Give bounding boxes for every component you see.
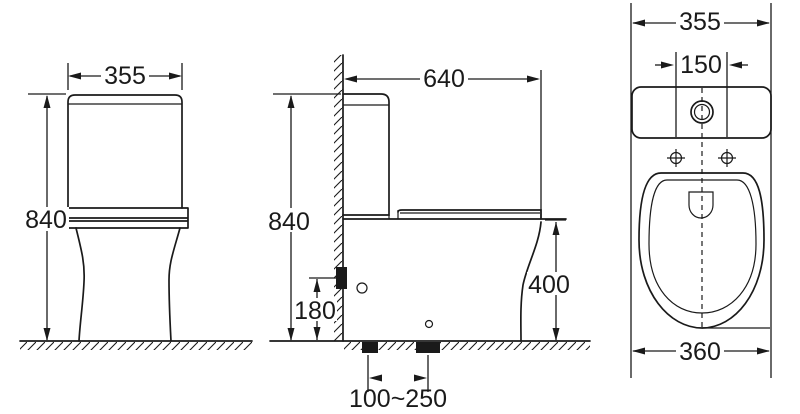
top-width-dimension: 355 [632, 8, 770, 36]
side-rim-height-dimension: 400 [527, 220, 571, 341]
toilet-dimension-drawing: 355 840 [0, 0, 800, 414]
top-view: 355 150 360 [631, 3, 771, 378]
front-width-label: 355 [104, 62, 146, 90]
side-bolt-hole-large [357, 283, 367, 293]
side-outlet-distance-dimension: 100~250 [349, 355, 447, 413]
drawing-canvas: 355 840 [0, 0, 800, 414]
front-view: 355 840 [20, 62, 252, 350]
front-body-right-curve [169, 228, 180, 341]
side-outlet-block-far [416, 342, 440, 353]
side-depth-dimension: 640 [344, 65, 541, 218]
top-bowl-width-dimension: 360 [632, 338, 770, 366]
top-button-offset-label: 150 [680, 51, 722, 79]
front-height-label: 840 [25, 206, 67, 234]
top-seat-bolt-right [718, 149, 736, 167]
side-outlet-block-near [362, 342, 378, 353]
side-view: 640 840 180 400 [267, 55, 590, 413]
top-seat-bolt-left [667, 149, 685, 167]
side-floor-hatch [344, 342, 590, 350]
front-seat-band [64, 208, 188, 228]
side-bolt-hole-small [426, 321, 433, 328]
side-outlet-distance-label: 100~250 [349, 385, 447, 413]
top-tank-outline [632, 87, 771, 138]
side-height-label: 840 [268, 208, 310, 236]
top-flush-water-spot [689, 192, 713, 218]
front-body-left-curve [76, 228, 84, 341]
side-seat-slab [398, 210, 541, 219]
side-rim-height-label: 400 [528, 271, 570, 299]
top-width-label: 355 [679, 8, 721, 36]
side-depth-label: 640 [423, 65, 465, 93]
front-tank-outline [68, 95, 182, 208]
top-bowl-width-label: 360 [679, 338, 721, 366]
front-floor-hatch [20, 342, 252, 350]
side-water-inlet-block [336, 267, 347, 289]
front-width-dimension: 355 [68, 62, 182, 90]
front-height-dimension: 840 [24, 94, 69, 341]
side-tank-step [389, 210, 398, 219]
side-inlet-height-label: 180 [294, 297, 336, 325]
side-tank-outline [343, 94, 389, 215]
side-inlet-height-dimension: 180 [293, 278, 337, 340]
